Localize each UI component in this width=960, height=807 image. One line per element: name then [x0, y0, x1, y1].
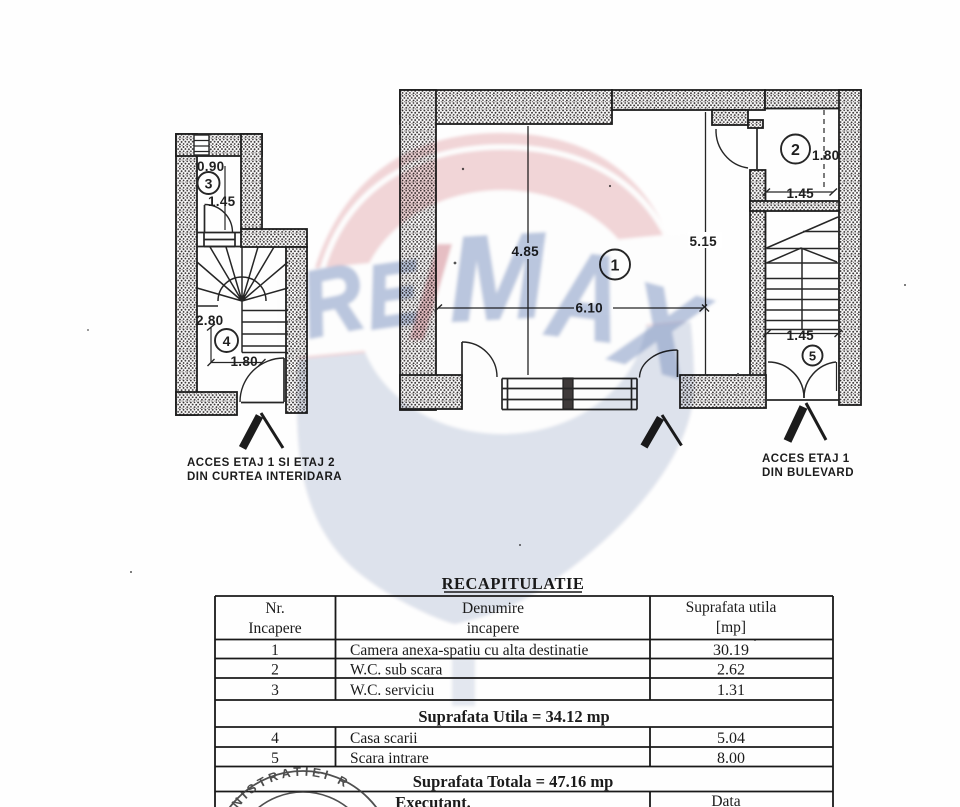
svg-text:4: 4: [223, 333, 231, 349]
svg-text:ACCES ETAJ 1: ACCES ETAJ 1: [762, 453, 850, 465]
svg-text:Data: Data: [711, 793, 740, 807]
svg-text:5: 5: [809, 349, 816, 364]
svg-text:Incapere: Incapere: [248, 620, 301, 637]
svg-text:1.45: 1.45: [208, 194, 236, 209]
svg-text:4: 4: [271, 730, 279, 747]
svg-text:1.31: 1.31: [717, 682, 745, 699]
svg-text:1.80: 1.80: [231, 354, 258, 369]
svg-text:M: M: [445, 208, 551, 347]
svg-text:2: 2: [791, 142, 800, 159]
svg-text:3: 3: [205, 176, 213, 192]
svg-text:incapere: incapere: [467, 620, 520, 637]
svg-text:1.45: 1.45: [787, 186, 815, 201]
svg-text:Suprafata Utila = 34.12 mp: Suprafata Utila = 34.12 mp: [418, 707, 609, 726]
svg-text:1.80: 1.80: [812, 148, 839, 163]
svg-text:Denumire: Denumire: [462, 600, 524, 617]
svg-text:Nr.: Nr.: [265, 600, 284, 617]
svg-text:Executant.: Executant.: [395, 793, 471, 807]
svg-text:0.90: 0.90: [197, 159, 224, 174]
svg-text:1.45: 1.45: [787, 328, 815, 343]
svg-text:2: 2: [271, 662, 279, 679]
svg-text:5.04: 5.04: [717, 730, 745, 747]
svg-text:Suprafata utila: Suprafata utila: [686, 599, 777, 616]
svg-text:30.19: 30.19: [713, 642, 749, 659]
svg-text:2.80: 2.80: [196, 313, 223, 328]
svg-text:W.C. serviciu: W.C. serviciu: [350, 682, 434, 699]
svg-text:Camera anexa-spatiu cu alta de: Camera anexa-spatiu cu alta destinatie: [350, 642, 589, 659]
svg-text:Scara intrare: Scara intrare: [350, 750, 429, 767]
svg-text:DIN BULEVARD: DIN BULEVARD: [762, 467, 854, 479]
svg-text:[mp]: [mp]: [716, 619, 746, 636]
svg-text:8.00: 8.00: [717, 750, 745, 767]
svg-text:2.62: 2.62: [717, 662, 745, 679]
svg-text:W.C. sub scara: W.C. sub scara: [350, 662, 443, 679]
svg-text:Suprafata Totala = 47.16 mp: Suprafata Totala = 47.16 mp: [413, 772, 614, 791]
svg-text:5: 5: [271, 750, 279, 767]
svg-text:1: 1: [271, 642, 279, 659]
svg-text:Casa scarii: Casa scarii: [350, 730, 418, 747]
svg-text:3: 3: [271, 682, 279, 699]
svg-text:RECAPITULATIE: RECAPITULATIE: [442, 574, 585, 593]
